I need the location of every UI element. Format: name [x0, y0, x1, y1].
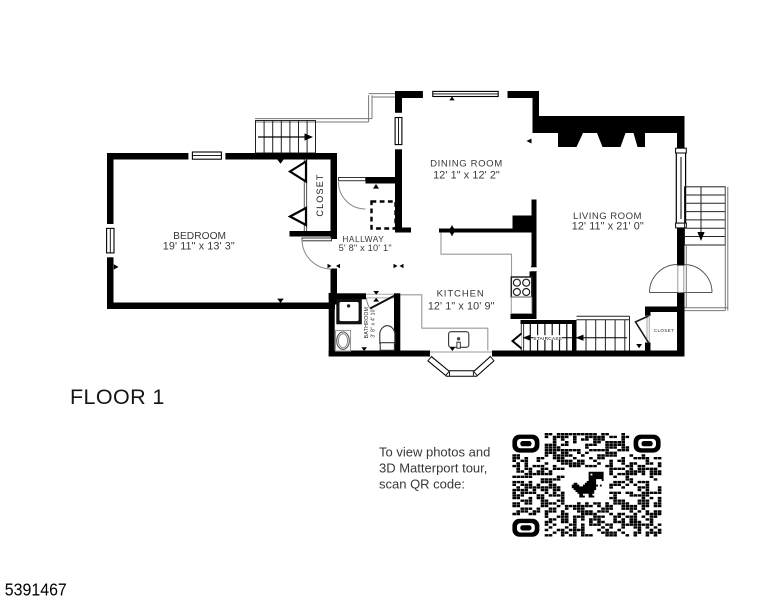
svg-text:STAIRCASE: STAIRCASE: [533, 336, 562, 341]
svg-text:To view photos and: To view photos and: [379, 444, 490, 459]
svg-text:12' 1" x 10' 9": 12' 1" x 10' 9": [428, 301, 495, 313]
svg-text:CLOSET: CLOSET: [315, 173, 325, 216]
svg-text:3' 8" x 4' 10": 3' 8" x 4' 10": [370, 307, 376, 337]
svg-text:BATHROOM: BATHROOM: [364, 307, 370, 339]
svg-text:DINING ROOM: DINING ROOM: [430, 159, 503, 170]
svg-text:5' 8" x 10' 1": 5' 8" x 10' 1": [339, 243, 392, 253]
svg-text:KITCHEN: KITCHEN: [437, 289, 485, 300]
svg-text:12' 1" x 12' 2": 12' 1" x 12' 2": [433, 170, 500, 182]
svg-text:5391467: 5391467: [5, 580, 67, 600]
svg-text:FLOOR 1: FLOOR 1: [70, 385, 165, 409]
svg-text:19' 11" x 13' 3": 19' 11" x 13' 3": [163, 240, 235, 252]
svg-text:12' 11" x 21' 0": 12' 11" x 21' 0": [572, 220, 644, 232]
svg-text:3D Matterport tour,: 3D Matterport tour,: [379, 460, 487, 475]
svg-text:CLOSET: CLOSET: [654, 328, 674, 333]
svg-text:scan QR code:: scan QR code:: [379, 476, 465, 491]
